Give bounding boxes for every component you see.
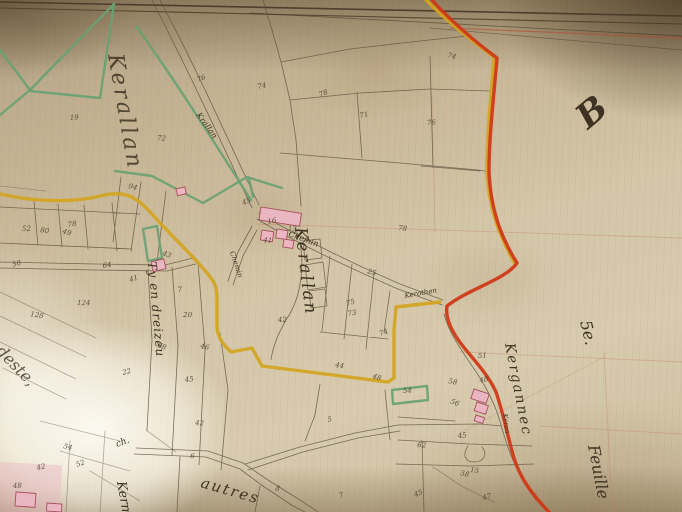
parcel-number: 22: [120, 367, 132, 377]
parcel-numbers: 7674197294787176787445161341257573424448…: [11, 51, 492, 502]
parcel-number: 64: [102, 261, 112, 270]
parcel-number: 78: [67, 220, 78, 229]
label-modeste: modeste,: [0, 324, 40, 390]
parcel-number: 25: [365, 267, 377, 278]
label-krallan-road: Krallan: [194, 110, 219, 140]
yellow-road-lines: [0, 0, 514, 382]
parcel-number: 80: [40, 226, 51, 235]
building: [276, 229, 288, 240]
parcel-number: 7: [177, 285, 183, 294]
parcel-boundary-lines: [0, 0, 536, 512]
label-kerothen-road: Kerothen: [403, 286, 438, 300]
parcel-number: 58: [448, 377, 459, 387]
green-road-kerallan: [137, 27, 251, 200]
parcel-number: 51: [478, 352, 487, 360]
building: [46, 503, 62, 512]
parcel-number: 42: [277, 316, 288, 324]
parcel-number: 78: [398, 224, 408, 233]
parcel-number: 41: [262, 236, 273, 245]
parcel-number: 128: [30, 310, 45, 320]
cadastral-map: Kerallan Kerallan Krallan Chemin Chemin …: [0, 0, 682, 512]
building: [176, 187, 186, 196]
parcel-number: 45: [456, 431, 467, 440]
parcel-number: 74: [378, 328, 389, 338]
red-boundary-line: [432, 0, 549, 512]
parcel-number: 45: [183, 375, 194, 384]
parcel-number: 124: [77, 299, 91, 307]
parcel-number: 42: [194, 419, 205, 428]
label-kerallan-main: Kerallan: [102, 51, 147, 172]
parcel-number: 56: [449, 397, 461, 408]
label-section-b: B: [567, 88, 616, 138]
parcel-number: 48: [12, 482, 23, 490]
parcel-number: 44: [334, 361, 345, 370]
parcel-number: 71: [359, 110, 369, 120]
parcel-number: 94: [128, 182, 139, 192]
place-labels: Kerallan Kerallan Krallan Chemin Chemin …: [0, 51, 616, 512]
parcel-number: 20: [182, 311, 193, 319]
label-ch-abbrev: ch.: [115, 436, 131, 450]
parcel-number: 13: [288, 225, 298, 233]
parcel-number: 46: [199, 342, 211, 352]
parcel-number: 73: [347, 308, 358, 318]
parcel-number: 74: [257, 81, 267, 91]
parcel-number: 78: [318, 88, 330, 99]
parcel-number: 58: [460, 469, 471, 479]
parcel-number: 45: [412, 488, 425, 499]
building: [474, 415, 484, 423]
parcel-number: 50: [11, 258, 22, 268]
parcel-number: 49: [60, 227, 72, 238]
parcel-number: 7: [338, 491, 346, 500]
parcel-number: 74: [446, 51, 457, 61]
label-kerm-partial: Kerm: [113, 479, 134, 512]
parcel-number: 62: [417, 441, 427, 450]
parcel-number: 54: [62, 442, 73, 452]
parcel-number: 72: [157, 134, 167, 143]
parcel-number: 41: [127, 274, 139, 284]
parcel-number: 5: [327, 415, 334, 424]
parcel-number: 8: [275, 484, 282, 493]
parcel-number: 75: [345, 297, 357, 308]
map-drawing: Kerallan Kerallan Krallan Chemin Chemin …: [0, 0, 682, 512]
building: [15, 492, 36, 507]
parcel-number: 76: [427, 119, 437, 127]
green-boundary-lines: [0, 4, 428, 404]
parcel-number: 52: [22, 225, 31, 233]
building: [471, 389, 489, 403]
parcel-number: 54: [403, 386, 412, 395]
sheet-border-lines: [0, 2, 682, 50]
building: [259, 207, 302, 226]
parcel-number: 15: [470, 466, 480, 475]
parcel-number: 19: [70, 113, 80, 122]
parcel-number: 52: [75, 458, 87, 469]
label-sheet-number: 5e.: [576, 318, 600, 347]
